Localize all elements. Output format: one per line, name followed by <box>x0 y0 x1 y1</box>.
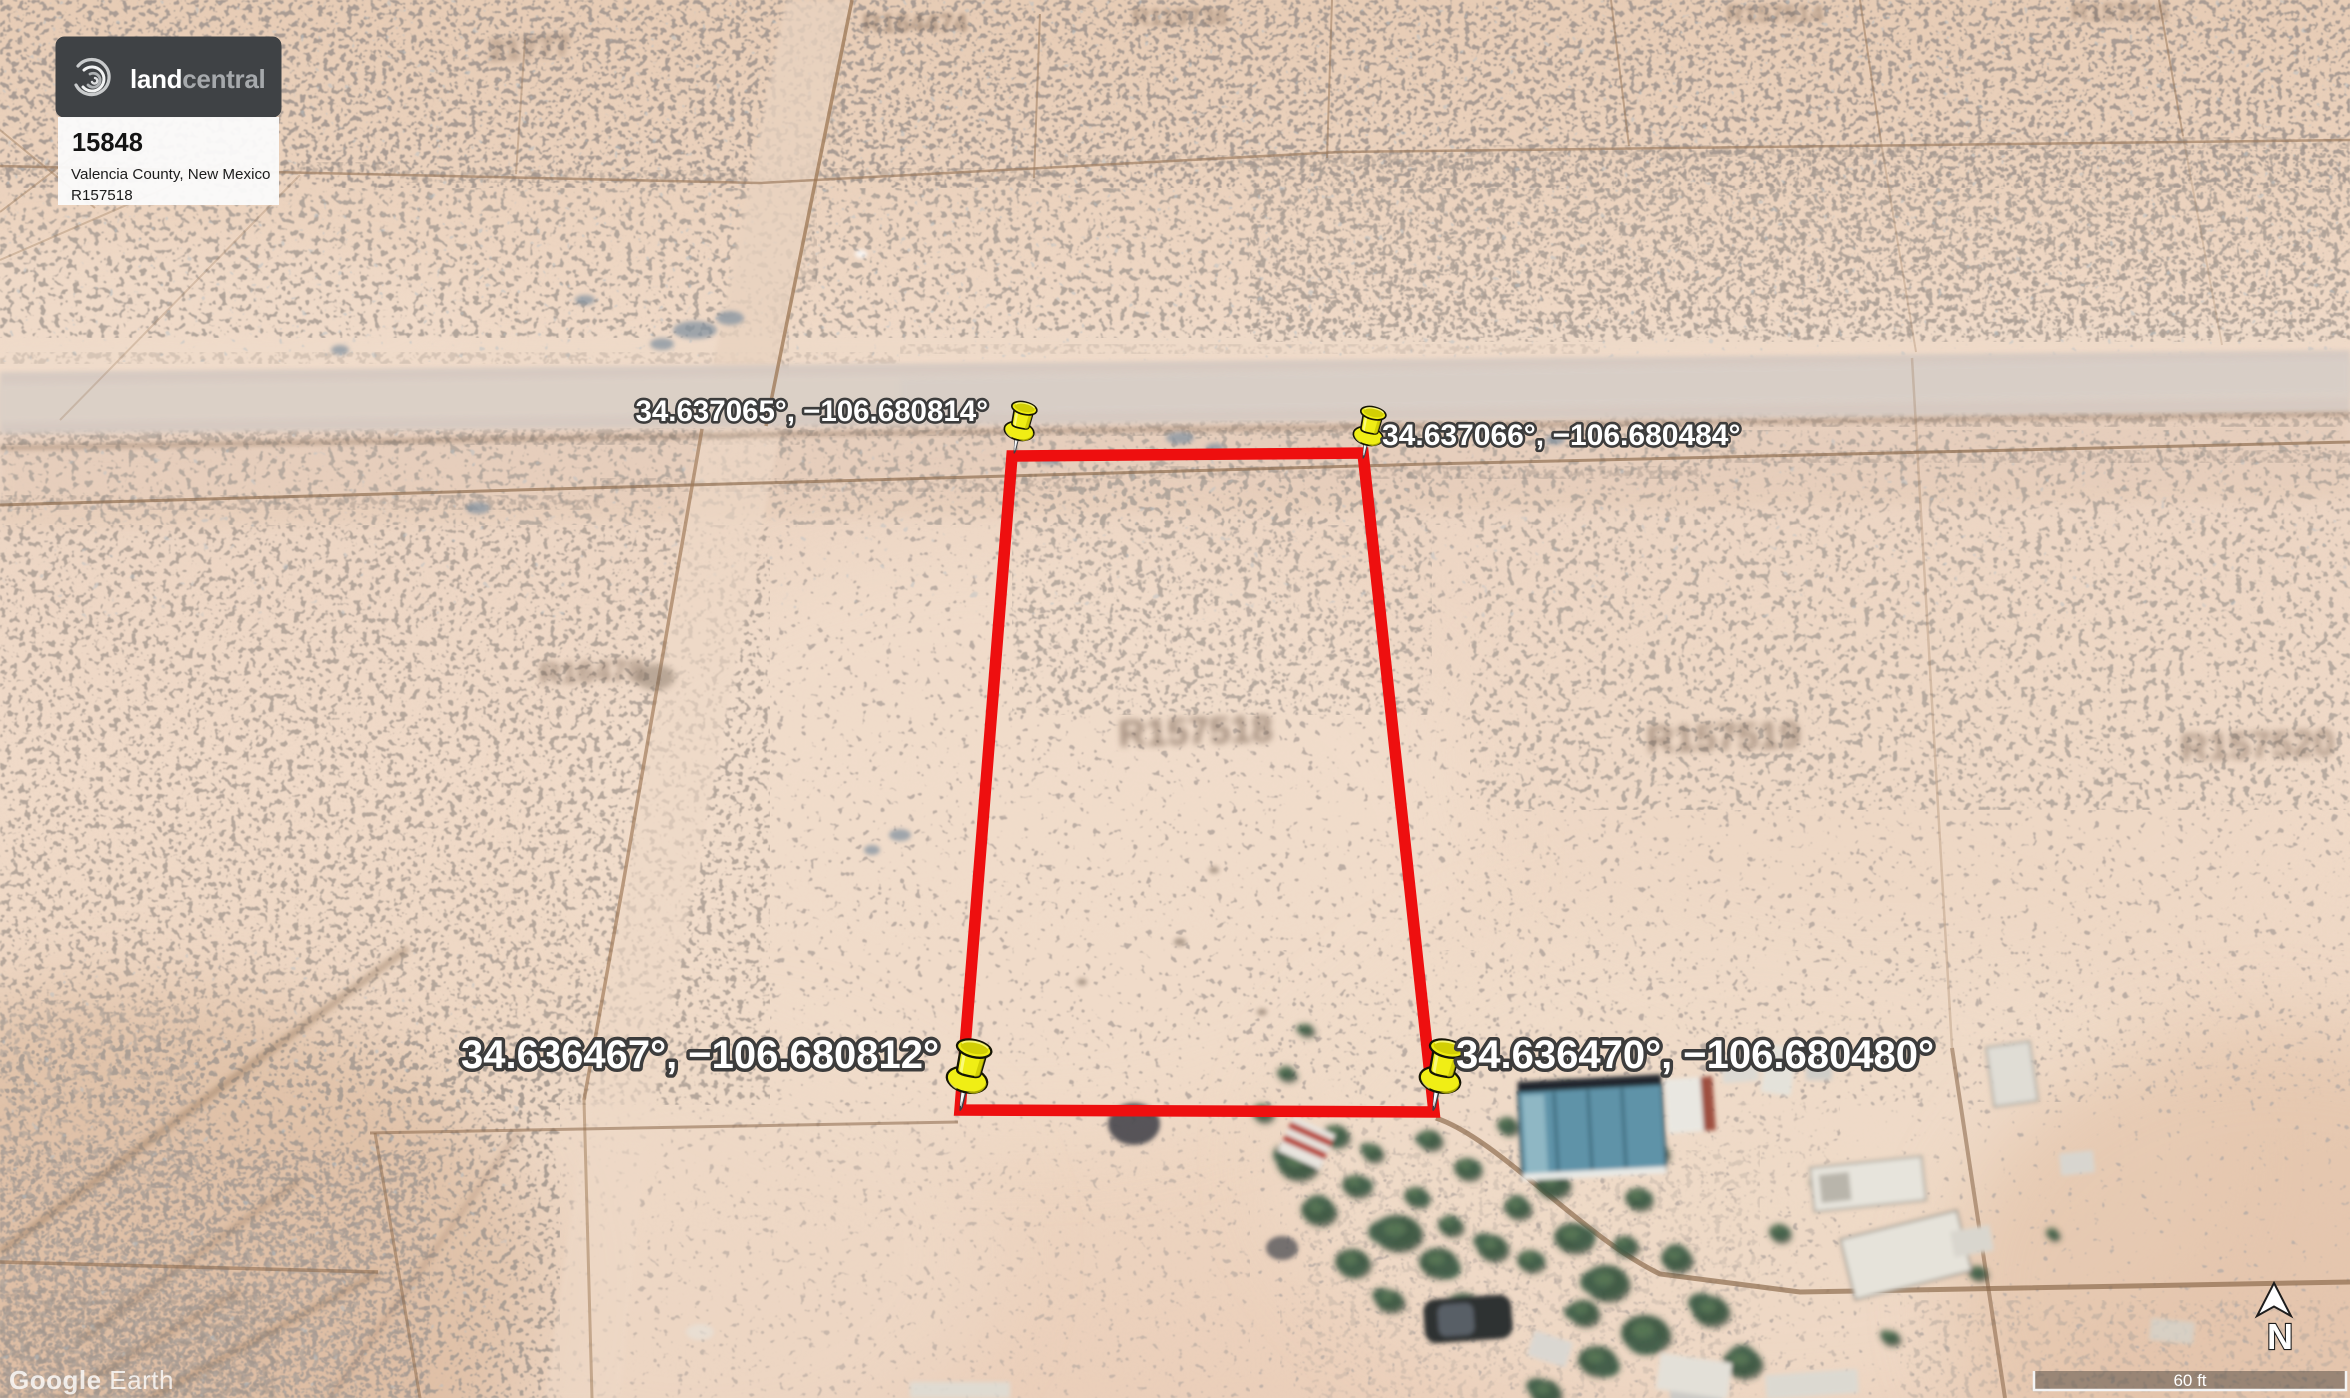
svg-text:landcentral: landcentral <box>130 64 265 94</box>
svg-text:34.636467°, −106.680812°: 34.636467°, −106.680812° <box>461 1033 939 1077</box>
svg-text:34.636470°, −106.680480°: 34.636470°, −106.680480° <box>1456 1033 1934 1077</box>
svg-text:15848: 15848 <box>72 129 143 157</box>
svg-text:Google Earth: Google Earth <box>9 1365 174 1395</box>
svg-text:R157518: R157518 <box>1118 708 1274 755</box>
svg-text:R157515: R157515 <box>2071 0 2168 26</box>
svg-text:34.637065°, −106.680814°: 34.637065°, −106.680814° <box>635 395 988 428</box>
svg-text:N: N <box>2267 1316 2293 1357</box>
svg-text:R157518: R157518 <box>71 187 133 204</box>
svg-text:Valencia County, New Mexico: Valencia County, New Mexico <box>71 166 271 183</box>
svg-text:R164474: R164474 <box>862 8 968 38</box>
svg-text:60 ft: 60 ft <box>2173 1371 2206 1390</box>
svg-text:R157514: R157514 <box>1726 1 1824 28</box>
svg-text:34.637066°, −106.680484°: 34.637066°, −106.680484° <box>1382 419 1741 452</box>
svg-text:R119736: R119736 <box>1132 4 1228 31</box>
svg-text:R157520: R157520 <box>2180 722 2336 769</box>
svg-text:21777: 21777 <box>487 29 573 68</box>
svg-text:R157519: R157519 <box>1646 714 1802 761</box>
svg-text:R16478: R16478 <box>539 654 645 691</box>
